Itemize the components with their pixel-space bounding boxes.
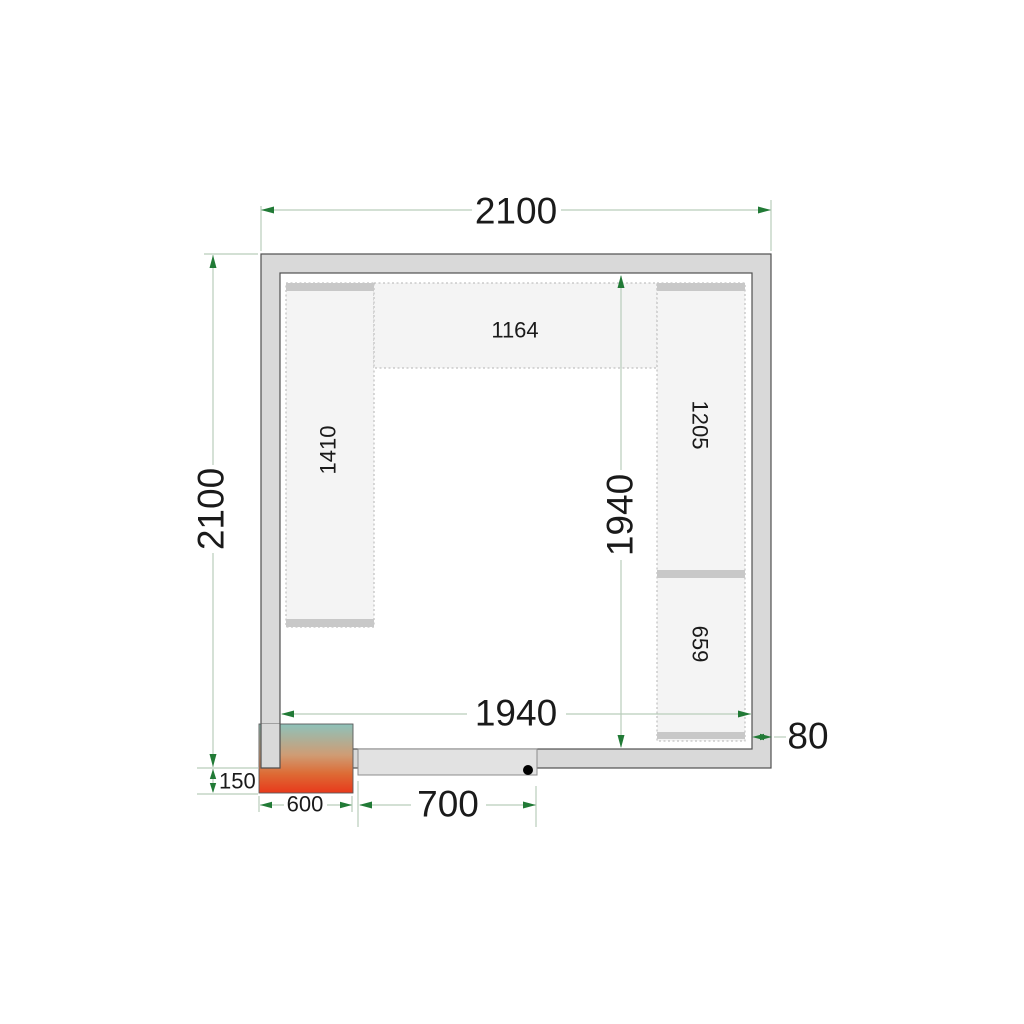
dim-outer-width: 2100 [261,191,771,252]
wall-over-unit-patch [261,724,280,768]
shelf-support-strip [657,570,745,578]
dim-inner-depth-label: 1940 [600,474,641,556]
door-leaf [358,749,537,775]
floor-plan-canvas: 1164 1410 1205 659 2100 2100 1940 1940 [0,0,1024,1024]
shelf-top-length-label: 1164 [491,318,538,343]
shelf-left-length-label: 1410 [316,426,341,475]
dim-unit-protrusion-label: 150 [219,769,256,794]
dim-arrow [260,802,272,808]
dim-wall-thickness-label: 80 [787,716,828,757]
shelf-support-strip [286,619,374,627]
dim-arrow [340,802,352,808]
dim-arrow [523,802,536,809]
dim-outer-width-label: 2100 [475,191,557,232]
shelf-support-strip [286,283,374,291]
dim-door-width: 700 [358,781,536,827]
shelf-support-strip [657,283,745,291]
dim-unit-width-label: 600 [287,792,324,817]
door-handle-dot [523,765,533,775]
dim-arrow [261,207,274,214]
shelf-right-lower-length-label: 659 [688,626,713,663]
dim-unit-protrusion: 150 [197,769,258,795]
dim-outer-depth: 2100 [191,254,259,768]
shelf-right [657,283,745,741]
door [358,749,537,775]
dim-door-width-label: 700 [417,784,479,825]
dim-arrow [359,802,372,809]
dim-arrow [758,207,771,214]
dim-arrow [210,754,217,767]
dim-unit-width: 600 [259,792,352,817]
dim-arrow [210,769,216,779]
dim-outer-depth-label: 2100 [191,468,232,550]
dim-arrow [210,783,216,793]
shelf-right-upper-length-label: 1205 [688,401,713,450]
shelf-support-strip [657,732,745,739]
cold-room-floor-plan: 1164 1410 1205 659 2100 2100 1940 1940 [0,0,1024,1024]
dim-arrow [210,255,217,268]
dim-inner-width-label: 1940 [475,693,557,734]
